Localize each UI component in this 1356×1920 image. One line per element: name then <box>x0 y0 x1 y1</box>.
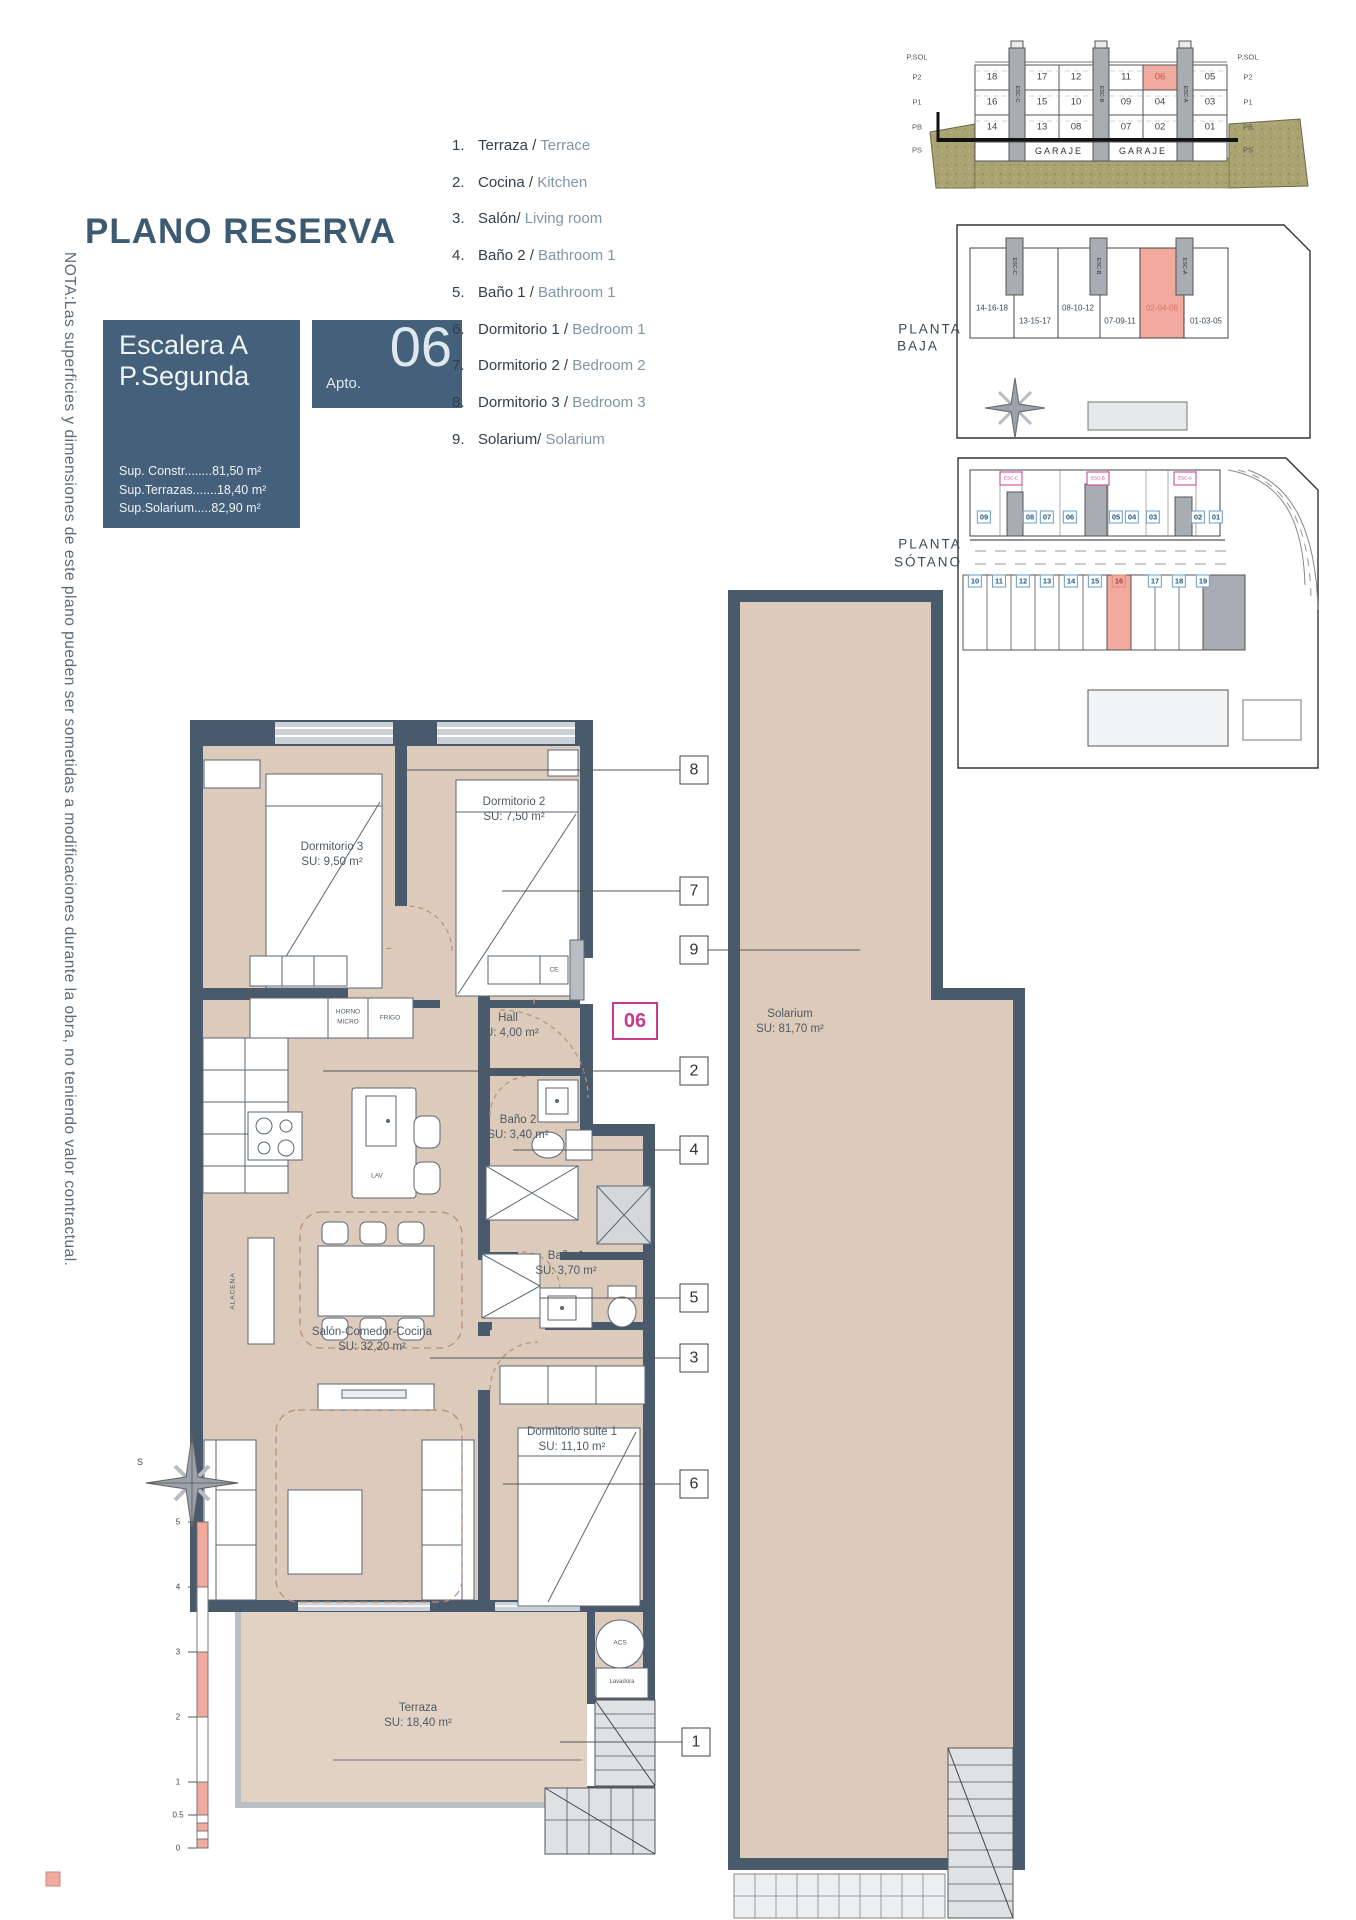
apto-prefix: Apto. <box>326 375 361 392</box>
pb-tower-label: ESC-B <box>1095 258 1101 275</box>
legend-item: 7.Dormitorio 2 / Bedroom 2 <box>452 357 646 374</box>
legend-en: Kitchen <box>537 174 587 191</box>
legend-es: Dormitorio 3 / <box>478 394 572 411</box>
scale-label: 1 <box>176 1778 180 1787</box>
callout-9: 9 <box>680 936 709 965</box>
floor-label-left: P.SOL <box>906 53 927 62</box>
room-area: SU: 9,50 m² <box>301 855 364 870</box>
parking-spot-number: 14 <box>1064 575 1078 588</box>
section-unit-number: 12 <box>1071 72 1082 83</box>
floor-label-right: PB <box>1243 123 1253 132</box>
fixture-lavadora: Lavadora <box>609 1679 634 1685</box>
sotano-esc-tag: ESC-C <box>1004 476 1018 481</box>
legend-number: 1. <box>452 137 478 154</box>
callout-5: 5 <box>680 1284 709 1313</box>
parking-spot-number: 15 <box>1088 575 1102 588</box>
section-unit-number: 06 <box>1155 72 1166 83</box>
parking-spot-number: 07 <box>1040 511 1054 524</box>
floor-label-left: PB <box>912 123 922 132</box>
legend-number: 5. <box>452 284 478 301</box>
section-unit-number: 08 <box>1071 122 1082 133</box>
planta-baja-group: 01-03-05 <box>1190 317 1222 326</box>
surface-line: Sup.Terrazas.......18,40 m² <box>119 481 266 500</box>
fixture-horno-micro: HORNO <box>336 1009 360 1016</box>
scale-label: 3 <box>176 1648 180 1657</box>
room-label-terraza: TerrazaSU: 18,40 m² <box>384 1701 452 1731</box>
legend-es: Solarium/ <box>478 431 546 448</box>
callout-3: 3 <box>680 1344 709 1373</box>
page-title: PLANO RESERVA <box>85 212 396 252</box>
section-unit-number: 17 <box>1037 72 1048 83</box>
compass-south-label: S <box>137 1457 143 1467</box>
parking-spot-number: 05 <box>1109 511 1123 524</box>
planta-baja-label-1: PLANTA <box>898 322 962 337</box>
unit-badge: 06 <box>612 1002 658 1040</box>
floor-label-right: P2 <box>1243 73 1252 82</box>
legend-es: Cocina / <box>478 174 537 191</box>
parking-spot-number: 18 <box>1172 575 1186 588</box>
room-area: SU: 32,20 m² <box>312 1340 432 1355</box>
legend-item: 5.Baño 1 / Bathroom 1 <box>452 284 616 301</box>
parking-spot-number: 09 <box>977 511 991 524</box>
parking-spot-number: 10 <box>968 575 982 588</box>
room-name: Baño 2 <box>487 1113 548 1128</box>
section-unit-number: 09 <box>1121 97 1132 108</box>
parking-spot-number: 19 <box>1196 575 1210 588</box>
callout-1: 1 <box>682 1728 711 1757</box>
legend-es: Terraza / <box>478 137 540 154</box>
room-area: SU: 3,70 m² <box>535 1264 596 1279</box>
fixture-horno-micro: MICRO <box>337 1019 359 1026</box>
fixture-acs: ACS <box>613 1640 626 1647</box>
callout-4: 4 <box>680 1136 709 1165</box>
floor-plan-page: NOTA:Las superficies y dimensiones de es… <box>0 0 1356 1920</box>
legend-en: Bedroom 1 <box>572 321 645 338</box>
room-name: Terraza <box>384 1701 452 1716</box>
sotano-esc-tag: ESC-B <box>1091 476 1105 481</box>
surface-list: Sup. Constr........81,50 m²Sup.Terrazas.… <box>119 462 266 518</box>
room-label-suite: Dormitorio suite 1SU: 11,10 m² <box>527 1425 617 1455</box>
fixture-lav: LAV <box>371 1173 383 1180</box>
legend-item: 8.Dormitorio 3 / Bedroom 3 <box>452 394 646 411</box>
legend-es: Dormitorio 2 / <box>478 357 572 374</box>
planta-baja-group: 13-15-17 <box>1019 317 1051 326</box>
legend-number: 6. <box>452 321 478 338</box>
section-unit-number: 04 <box>1155 97 1166 108</box>
room-name: Salón-Comedor-Cocina <box>312 1325 432 1340</box>
floor-label-left: P2 <box>912 73 921 82</box>
room-area: SU: 11,10 m² <box>527 1440 617 1455</box>
parking-spot-number: 13 <box>1040 575 1054 588</box>
legend-es: Baño 1 / <box>478 284 538 301</box>
scale-label: 0 <box>176 1844 180 1853</box>
section-tower-label: ESC-B <box>1098 86 1104 103</box>
planta-baja-diagram <box>957 225 1310 438</box>
section-unit-number: 18 <box>987 72 998 83</box>
room-area: SU: 4,00 m² <box>477 1026 538 1041</box>
escalera-box: Escalera A P.Segunda Sup. Constr........… <box>103 320 300 528</box>
floor-label-left: P1 <box>912 98 921 107</box>
room-name: Hall <box>477 1011 538 1026</box>
section-unit-number: 15 <box>1037 97 1048 108</box>
room-label-dorm3: Dormitorio 3SU: 9,50 m² <box>301 840 364 870</box>
parking-spot-number: 06 <box>1063 511 1077 524</box>
room-label-solarium: SolariumSU: 81,70 m² <box>756 1007 824 1037</box>
scale-label: 0.5 <box>172 1811 183 1820</box>
legend-en: Terrace <box>540 137 590 154</box>
planta-sotano-diagram <box>958 458 1318 768</box>
fixture-frigo: FRIGO <box>380 1015 401 1022</box>
legend-item: 6.Dormitorio 1 / Bedroom 1 <box>452 321 646 338</box>
planta-baja-group: 07-09-11 <box>1104 317 1135 326</box>
section-tower-label: ESC-C <box>1014 85 1020 102</box>
callout-2: 2 <box>680 1057 709 1086</box>
apto-number: 06 <box>390 314 452 379</box>
apartment-plan <box>190 720 655 1854</box>
section-unit-number: 03 <box>1205 97 1216 108</box>
parking-spot-number: 12 <box>1016 575 1030 588</box>
legend-number: 7. <box>452 357 478 374</box>
parking-spot-number: 08 <box>1023 511 1037 524</box>
room-label-dorm2: Dormitorio 2SU: 7,50 m² <box>483 795 546 825</box>
legend-en: Bathroom 1 <box>538 247 616 264</box>
parking-spot-number: 02 <box>1191 511 1205 524</box>
section-unit-number: 14 <box>987 122 998 133</box>
room-label-bano1: Baño 1SU: 3,70 m² <box>535 1249 596 1279</box>
section-unit-number: 10 <box>1071 97 1082 108</box>
planta-sotano-label-1: PLANTA <box>898 537 962 552</box>
parking-spot-number: 03 <box>1146 511 1160 524</box>
parking-spot-number: 17 <box>1148 575 1162 588</box>
parking-spot-number: 01 <box>1209 511 1223 524</box>
room-name: Dormitorio 3 <box>301 840 364 855</box>
room-label-salon: Salón-Comedor-CocinaSU: 32,20 m² <box>312 1325 432 1355</box>
parking-spot-number: 16 <box>1112 575 1126 588</box>
legend-en: Living room <box>525 210 603 227</box>
floor-label-right: PS <box>1243 146 1253 155</box>
legend-item: 1.Terraza / Terrace <box>452 137 590 154</box>
escalera-label: Escalera A <box>119 330 300 361</box>
surface-line: Sup.Solarium.....82,90 m² <box>119 499 266 518</box>
legend-number: 8. <box>452 394 478 411</box>
room-label-bano2: Baño 2SU: 3,40 m² <box>487 1113 548 1143</box>
solarium-outline <box>728 590 1025 1918</box>
section-unit-number: 11 <box>1121 72 1131 83</box>
callout-7: 7 <box>680 877 709 906</box>
planta-baja-group: 14-16-18 <box>976 304 1008 313</box>
legend-es: Salón/ <box>478 210 525 227</box>
section-tower-label: ESC-A <box>1182 86 1188 103</box>
pb-tower-label: ESC-A <box>1181 258 1187 275</box>
scale-label: 4 <box>176 1583 180 1592</box>
garaje-label: GARAJE <box>1119 146 1167 156</box>
section-unit-number: 01 <box>1205 122 1216 133</box>
floor-label-left: PS <box>912 146 922 155</box>
parking-spot-number: 11 <box>992 575 1006 588</box>
garaje-label: GARAJE <box>1035 146 1083 156</box>
fixture-ce: CE <box>549 967 558 974</box>
pb-tower-label: ESC-C <box>1011 257 1017 274</box>
room-area: SU: 18,40 m² <box>384 1716 452 1731</box>
floor-label-right: P1 <box>1243 98 1252 107</box>
disclaimer-note: NOTA:Las superficies y dimensiones de es… <box>50 252 78 1822</box>
legend-en: Bedroom 3 <box>572 394 645 411</box>
room-name: Dormitorio 2 <box>483 795 546 810</box>
legend-number: 2. <box>452 174 478 191</box>
planta-label: P.Segunda <box>119 361 300 392</box>
legend-en: Solarium <box>546 431 605 448</box>
planta-sotano-label-2: SÓTANO <box>894 555 962 570</box>
room-area: SU: 3,40 m² <box>487 1128 548 1143</box>
sotano-esc-tag: ESC-A <box>1178 476 1192 481</box>
legend-item: 9.Solarium/ Solarium <box>452 431 605 448</box>
planta-baja-group: 08-10-12 <box>1062 304 1094 313</box>
fixture-alacena: ALACENA <box>230 1272 237 1309</box>
building-section-diagram <box>930 41 1308 188</box>
section-unit-number: 13 <box>1037 122 1048 133</box>
section-unit-number: 05 <box>1205 72 1216 83</box>
legend-item: 4.Baño 2 / Bathroom 1 <box>452 247 616 264</box>
legend-en: Bathroom 1 <box>538 284 616 301</box>
room-name: Solarium <box>756 1007 824 1022</box>
surface-line: Sup. Constr........81,50 m² <box>119 462 266 481</box>
section-unit-number: 02 <box>1155 122 1166 133</box>
parking-spot-number: 04 <box>1125 511 1139 524</box>
room-name: Baño 1 <box>535 1249 596 1264</box>
callout-6: 6 <box>680 1470 709 1499</box>
legend-item: 2.Cocina / Kitchen <box>452 174 587 191</box>
room-name: Dormitorio suite 1 <box>527 1425 617 1440</box>
legend-en: Bedroom 2 <box>572 357 645 374</box>
section-unit-number: 07 <box>1121 122 1132 133</box>
floor-label-right: P.SOL <box>1237 53 1258 62</box>
scale-label: 2 <box>176 1713 180 1722</box>
planta-baja-label-2: BAJA <box>897 339 939 354</box>
scale-label: 5 <box>176 1518 180 1527</box>
room-label-hall: HallSU: 4,00 m² <box>477 1011 538 1041</box>
legend-number: 4. <box>452 247 478 264</box>
floorplan-linework <box>0 0 1356 1920</box>
apto-box: Apto. 06 <box>312 320 462 408</box>
callout-8: 8 <box>680 756 709 785</box>
room-area: SU: 7,50 m² <box>483 810 546 825</box>
legend-es: Dormitorio 1 / <box>478 321 572 338</box>
section-unit-number: 16 <box>987 97 998 108</box>
legend-es: Baño 2 / <box>478 247 538 264</box>
legend-number: 9. <box>452 431 478 448</box>
room-area: SU: 81,70 m² <box>756 1022 824 1037</box>
planta-baja-group: 02-04-06 <box>1146 304 1178 313</box>
legend-item: 3.Salón/ Living room <box>452 210 602 227</box>
legend-number: 3. <box>452 210 478 227</box>
